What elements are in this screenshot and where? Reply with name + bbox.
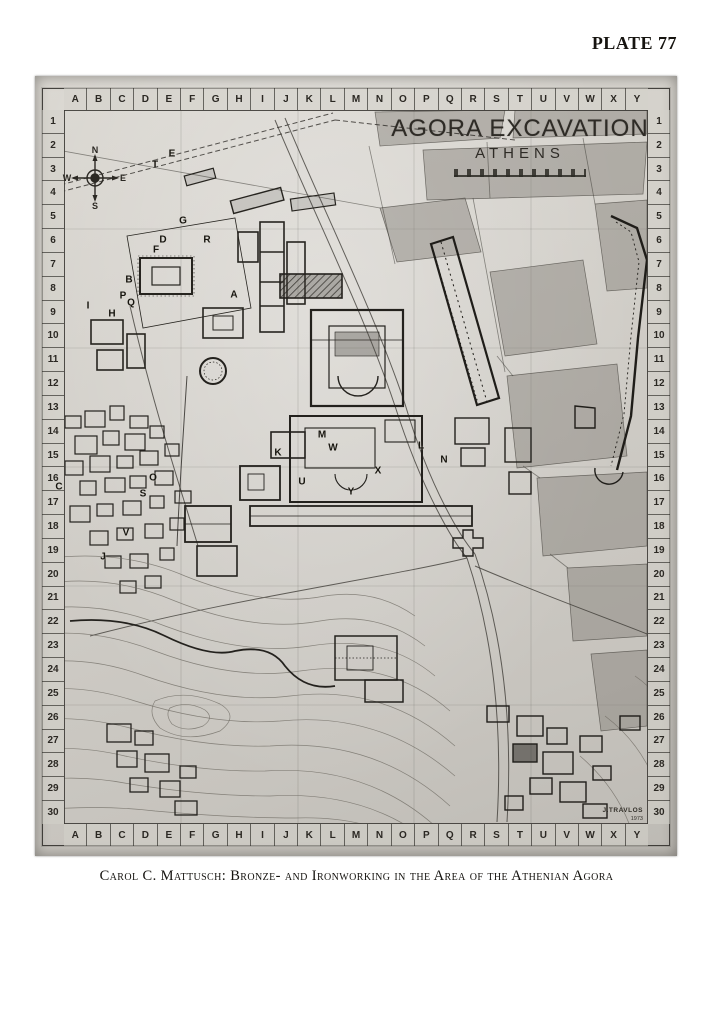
- grid-letter-top-cell-y: Y: [626, 88, 648, 110]
- grid-letter-top-cell-n: N: [368, 88, 391, 110]
- grid-number-left-cell-14: 14: [42, 420, 64, 444]
- grid-number-right-cell-1: 1: [648, 110, 670, 134]
- grid-letter-top-cell-d: D: [134, 88, 157, 110]
- grid-number-left-cell-15: 15: [42, 444, 64, 468]
- grid-number-right-cell-5: 5: [648, 205, 670, 229]
- grid-number-left-cell-5: 5: [42, 205, 64, 229]
- grid-number-right-cell-12: 12: [648, 372, 670, 396]
- grid-number-right-cell-14: 14: [648, 420, 670, 444]
- grid-number-left-cell-3: 3: [42, 158, 64, 182]
- grid-number-left-cell-8: 8: [42, 277, 64, 301]
- grid-number-right-cell-3: 3: [648, 158, 670, 182]
- grid-letter-top-cell-a: A: [64, 88, 87, 110]
- plate-caption: Carol C. Mattusch: Bronze- and Ironworki…: [0, 868, 713, 885]
- grid-letter-bottom-cell-f: F: [181, 824, 204, 846]
- grid-number-right-cell-2: 2: [648, 134, 670, 158]
- grid-number-left-cell-1: 1: [42, 110, 64, 134]
- grid-number-left-cell-12: 12: [42, 372, 64, 396]
- grid-letters-bottom: ABCDEFGHIJKLMNOPQRSTUVWXY: [64, 823, 648, 846]
- grid-number-right-cell-10: 10: [648, 324, 670, 348]
- grid-number-left-cell-9: 9: [42, 301, 64, 325]
- grid-number-left-cell-7: 7: [42, 253, 64, 277]
- grid-number-right-cell-27: 27: [648, 730, 670, 754]
- page: { "page": { "plate_label": "PLATE 77", "…: [0, 0, 713, 1024]
- grid-number-left-cell-21: 21: [42, 587, 64, 611]
- grid-letter-bottom-cell-e: E: [158, 824, 181, 846]
- grid-letter-bottom-cell-y: Y: [626, 824, 648, 846]
- grid-letter-bottom-cell-t: T: [509, 824, 532, 846]
- grid-letter-bottom-cell-x: X: [602, 824, 625, 846]
- grid-number-left-cell-29: 29: [42, 777, 64, 801]
- grid-numbers-left: 1234567891011121314151617181920212223242…: [42, 110, 65, 824]
- grid-letter-top-cell-c: C: [111, 88, 134, 110]
- grid-number-left-cell-22: 22: [42, 610, 64, 634]
- grid-number-right-cell-4: 4: [648, 181, 670, 205]
- grid-letter-bottom-cell-a: A: [64, 824, 87, 846]
- grid-numbers-right: 1234567891011121314151617181920212223242…: [647, 110, 670, 824]
- grid-letter-bottom-cell-h: H: [228, 824, 251, 846]
- grid-letter-top-cell-v: V: [556, 88, 579, 110]
- grid-number-left-cell-4: 4: [42, 181, 64, 205]
- grid-number-left-cell-25: 25: [42, 682, 64, 706]
- grid-letter-bottom-cell-w: W: [579, 824, 602, 846]
- grid-letter-top-cell-j: J: [275, 88, 298, 110]
- grid-number-left-cell-18: 18: [42, 515, 64, 539]
- grid-number-left-cell-24: 24: [42, 658, 64, 682]
- grid-letter-top-cell-q: Q: [439, 88, 462, 110]
- grid-number-right-cell-29: 29: [648, 777, 670, 801]
- grid-letter-bottom-cell-v: V: [556, 824, 579, 846]
- grid-letter-top-cell-w: W: [579, 88, 602, 110]
- grid-letters-top: ABCDEFGHIJKLMNOPQRSTUVWXY: [64, 88, 648, 111]
- grid-letter-top-cell-g: G: [204, 88, 227, 110]
- grid-letter-top-cell-k: K: [298, 88, 321, 110]
- grid-number-right-cell-7: 7: [648, 253, 670, 277]
- grid-letter-top-cell-m: M: [345, 88, 368, 110]
- grid-letter-top-cell-e: E: [158, 88, 181, 110]
- grid-letter-top-cell-u: U: [532, 88, 555, 110]
- grid-letter-top-cell-t: T: [509, 88, 532, 110]
- grid-number-right-cell-9: 9: [648, 301, 670, 325]
- grid-number-right-cell-26: 26: [648, 706, 670, 730]
- grid-number-right-cell-24: 24: [648, 658, 670, 682]
- grid-number-right-cell-8: 8: [648, 277, 670, 301]
- grid-letter-bottom-cell-r: R: [462, 824, 485, 846]
- map-photo: ABCDEFGHIJKLMNOPQRSTUVWXY ABCDEFGHIJKLMN…: [35, 76, 677, 856]
- grid-letter-bottom-cell-s: S: [485, 824, 508, 846]
- grid-letter-bottom-cell-p: P: [415, 824, 438, 846]
- grid-number-left-cell-30: 30: [42, 801, 64, 824]
- grid-number-right-cell-6: 6: [648, 229, 670, 253]
- grid-number-left-cell-28: 28: [42, 753, 64, 777]
- grid-number-right-cell-17: 17: [648, 491, 670, 515]
- grid-number-left-cell-26: 26: [42, 706, 64, 730]
- grid-letter-top-cell-b: B: [87, 88, 110, 110]
- grid-letter-bottom-cell-g: G: [204, 824, 227, 846]
- grid-number-left-cell-2: 2: [42, 134, 64, 158]
- grid-number-left-cell-10: 10: [42, 324, 64, 348]
- grid-number-right-cell-15: 15: [648, 444, 670, 468]
- grid-letter-bottom-cell-u: U: [532, 824, 555, 846]
- grid-letter-top-cell-i: I: [251, 88, 274, 110]
- grid-number-right-cell-21: 21: [648, 587, 670, 611]
- grid-letter-bottom-cell-i: I: [251, 824, 274, 846]
- grid-number-right-cell-19: 19: [648, 539, 670, 563]
- grid-letter-bottom-cell-o: O: [392, 824, 415, 846]
- grid-number-left-cell-23: 23: [42, 634, 64, 658]
- grid-letter-top-cell-s: S: [485, 88, 508, 110]
- grid-number-right-cell-13: 13: [648, 396, 670, 420]
- grid-number-left-cell-11: 11: [42, 348, 64, 372]
- grid-letter-bottom-cell-c: C: [111, 824, 134, 846]
- grid-letter-top-cell-h: H: [228, 88, 251, 110]
- grid-letter-bottom-cell-q: Q: [439, 824, 462, 846]
- grid-letter-bottom-cell-k: K: [298, 824, 321, 846]
- grid-letter-top-cell-o: O: [392, 88, 415, 110]
- plate-label: PLATE 77: [592, 33, 677, 54]
- grid-letter-top-cell-r: R: [462, 88, 485, 110]
- grid-letter-top-cell-p: P: [415, 88, 438, 110]
- grid-number-right-cell-30: 30: [648, 801, 670, 824]
- grid-number-left-cell-13: 13: [42, 396, 64, 420]
- grid-number-right-cell-28: 28: [648, 753, 670, 777]
- grid-number-left-cell-17: 17: [42, 491, 64, 515]
- grid-letter-bottom-cell-j: J: [275, 824, 298, 846]
- map-artwork: [35, 76, 677, 856]
- grid-number-right-cell-18: 18: [648, 515, 670, 539]
- grid-letter-bottom-cell-l: L: [321, 824, 344, 846]
- grid-number-left-cell-19: 19: [42, 539, 64, 563]
- grid-number-left-cell-16: 16: [42, 467, 64, 491]
- grid-number-right-cell-25: 25: [648, 682, 670, 706]
- grid-number-left-cell-27: 27: [42, 730, 64, 754]
- grid-letter-bottom-cell-d: D: [134, 824, 157, 846]
- grid-letter-bottom-cell-b: B: [87, 824, 110, 846]
- grid-letter-top-cell-x: X: [602, 88, 625, 110]
- grid-number-right-cell-23: 23: [648, 634, 670, 658]
- grid-number-left-cell-20: 20: [42, 563, 64, 587]
- grid-number-right-cell-11: 11: [648, 348, 670, 372]
- grid-letter-top-cell-l: L: [321, 88, 344, 110]
- grid-number-right-cell-16: 16: [648, 467, 670, 491]
- grid-letter-top-cell-f: F: [181, 88, 204, 110]
- grid-number-right-cell-22: 22: [648, 610, 670, 634]
- grid-letter-bottom-cell-n: N: [368, 824, 391, 846]
- grid-number-left-cell-6: 6: [42, 229, 64, 253]
- grid-letter-bottom-cell-m: M: [345, 824, 368, 846]
- grid-number-right-cell-20: 20: [648, 563, 670, 587]
